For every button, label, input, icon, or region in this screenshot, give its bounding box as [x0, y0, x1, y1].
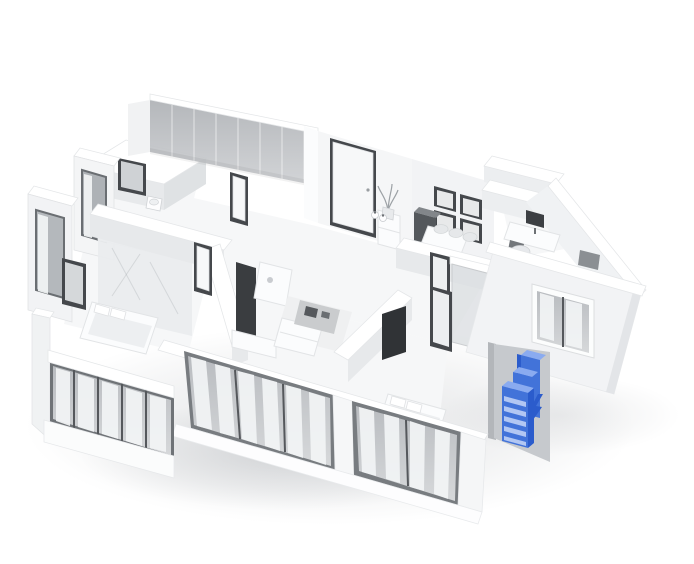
kitchen-counter [254, 262, 292, 306]
tv-panel-bedroom [382, 306, 406, 360]
facade-corner-pier [458, 432, 486, 512]
tv-panel-living [236, 262, 256, 338]
door-handle [366, 188, 369, 191]
entry-door [333, 142, 373, 233]
floorplan-canvas [0, 0, 694, 564]
dining-chair [449, 229, 463, 238]
sink [267, 277, 273, 283]
dining-chair [463, 233, 477, 242]
apartment-3d-render [0, 0, 694, 564]
toilet [146, 196, 162, 211]
facade-pier [333, 395, 354, 475]
dining-chair [434, 225, 448, 234]
